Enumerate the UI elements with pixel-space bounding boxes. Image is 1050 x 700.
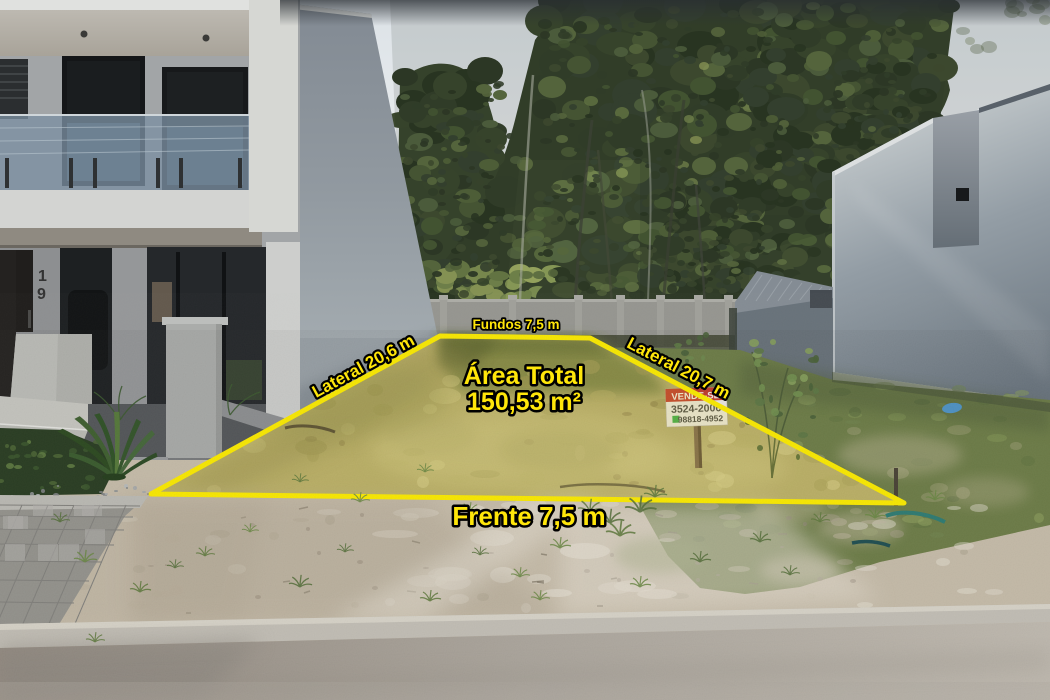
svg-text:1: 1 bbox=[38, 268, 47, 285]
svg-text:Frente 7,5 m: Frente 7,5 m bbox=[452, 501, 605, 531]
svg-text:Fundos 7,5 m: Fundos 7,5 m bbox=[472, 317, 559, 332]
svg-text:150,53 m²: 150,53 m² bbox=[467, 388, 581, 416]
svg-text:Área Total: Área Total bbox=[464, 361, 584, 390]
svg-text:9: 9 bbox=[37, 286, 46, 303]
